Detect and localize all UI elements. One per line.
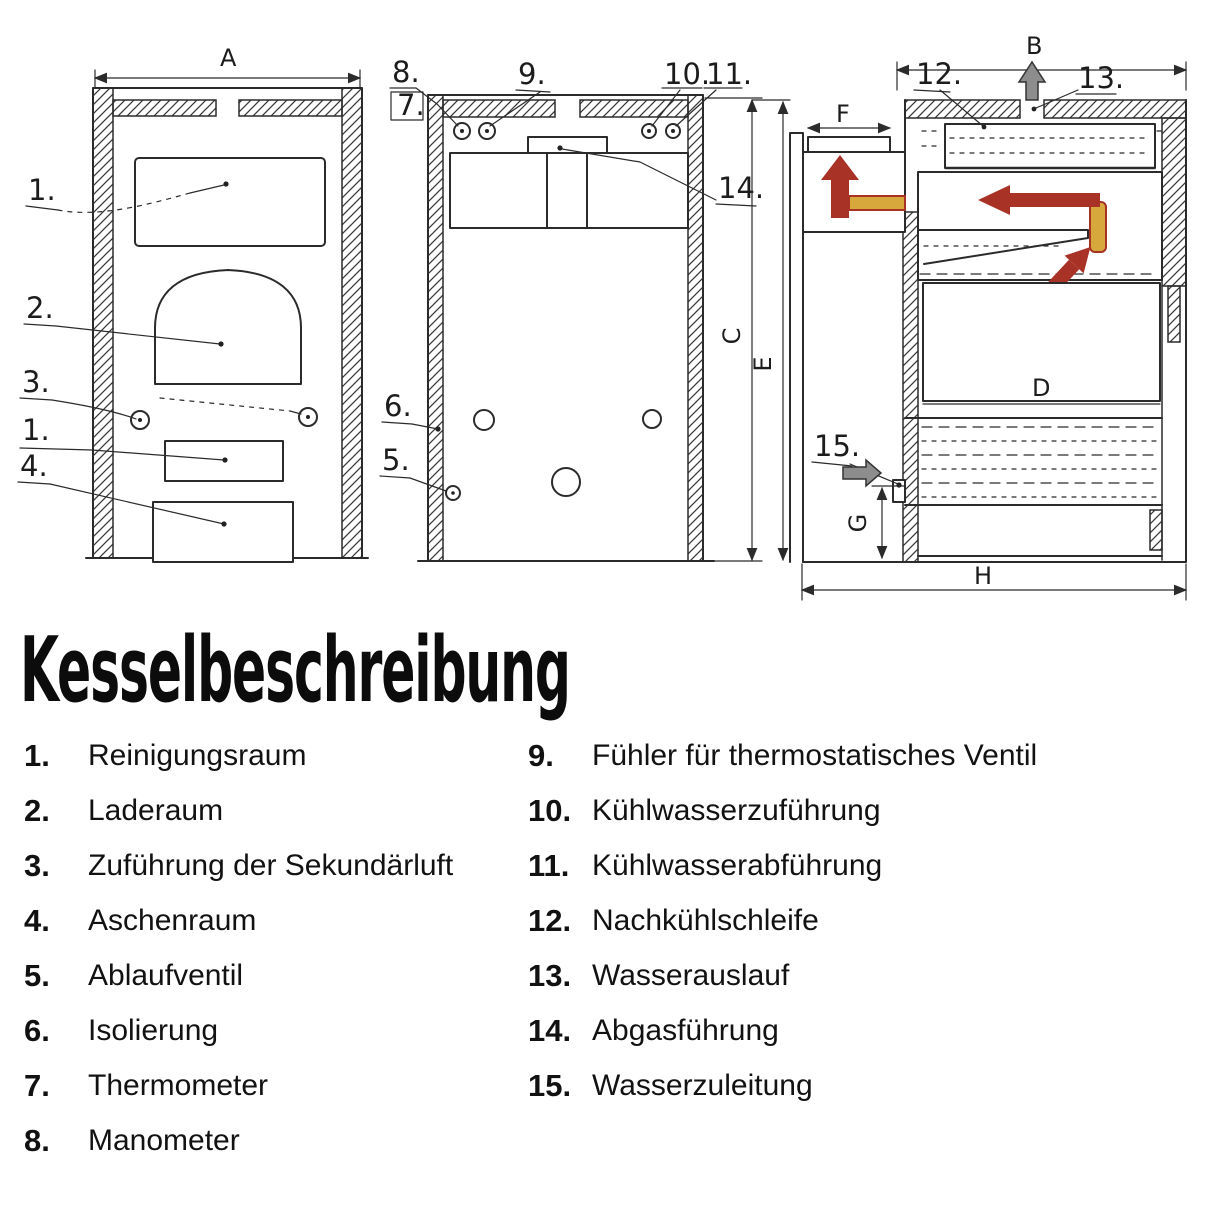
front-cleaning-chamber-door [135, 158, 325, 246]
rear-top-insulation-right [580, 100, 688, 117]
list-item: 13.Wasserauslauf [528, 948, 1037, 1003]
side-view-drawing: B F 12. [749, 32, 1186, 600]
item-number: 11. [528, 848, 592, 884]
callout-4-label: 4. [20, 449, 48, 483]
callout-11-label: 11. [706, 57, 752, 91]
item-label: Abgasführung [592, 1014, 779, 1048]
list-item: 11.Kühlwasserabführung [528, 838, 1037, 893]
callout-1b-label: 1. [22, 413, 50, 447]
callout-6-label: 6. [384, 389, 412, 423]
item-label: Ablaufventil [88, 959, 243, 993]
list-item: 5.Ablaufventil [24, 948, 453, 1003]
item-number: 1. [24, 738, 88, 774]
item-number: 4. [24, 903, 88, 939]
dimension-h: H [802, 562, 1186, 600]
item-label: Manometer [88, 1124, 240, 1158]
after-cooling-loop [922, 124, 1162, 168]
list-item: 14.Abgasführung [528, 1003, 1037, 1058]
dim-f-label: F [836, 100, 850, 128]
callout-3-label: 3. [22, 365, 50, 399]
cooling-water-inlet-port [642, 124, 656, 138]
hot-gas-left-arrow [978, 185, 1100, 215]
item-label: Thermometer [88, 1069, 268, 1103]
callout-15-label: 15. [814, 429, 860, 463]
callout-7-label: 7. [397, 88, 425, 122]
drain-valve-port [446, 486, 460, 500]
flue-outlet-box [803, 152, 905, 232]
list-item: 7.Thermometer [24, 1058, 453, 1113]
front-right-wall-insulation [342, 88, 362, 558]
callout-14-label: 14. [718, 171, 764, 205]
callout-8-label: 8. [392, 55, 420, 89]
dim-a-label: A [220, 44, 237, 72]
middle-baffle-wedge [918, 230, 1088, 264]
item-label: Aschenraum [88, 904, 256, 938]
list-item: 2.Laderaum [24, 783, 453, 838]
front-top-insulation-left [113, 100, 216, 116]
upper-flue-chamber [918, 172, 1162, 280]
flue-gas-outlet-stub [528, 137, 607, 153]
rear-view-drawing: 8. 7. 9. 10. 11. 14. 6. [380, 55, 764, 561]
item-label: Reinigungsraum [88, 739, 306, 773]
dim-g-label: G [844, 514, 872, 533]
side-right-wall-insulation [1162, 118, 1186, 286]
list-item: 15.Wasserzuleitung [528, 1058, 1037, 1113]
dimension-e: E [749, 100, 790, 560]
flue-elbow-pipe [1090, 202, 1106, 252]
rear-top-insulation-left [443, 100, 555, 117]
callout-9-label: 9. [518, 57, 546, 91]
item-number: 5. [24, 958, 88, 994]
dim-c-label: C [718, 328, 746, 345]
item-label: Kühlwasserzuführung [592, 794, 881, 828]
item-label: Kühlwasserabführung [592, 849, 882, 883]
callout-13-label: 13. [1078, 61, 1124, 95]
front-view-drawing: A 1. 2. 3. [18, 44, 368, 562]
rear-upper-chamber [450, 153, 688, 228]
item-label: Fühler für thermostatisches Ventil [592, 739, 1037, 773]
list-item: 9.Fühler für thermostatisches Ventil [528, 728, 1037, 783]
list-item: 12.Nachkühlschleife [528, 893, 1037, 948]
item-number: 10. [528, 793, 592, 829]
callout-2-label: 2. [26, 291, 54, 325]
item-number: 6. [24, 1013, 88, 1049]
item-number: 9. [528, 738, 592, 774]
item-label: Isolierung [88, 1014, 218, 1048]
callout-1-label: 1. [28, 173, 56, 207]
callout-7-thermometer: 7. [391, 88, 425, 122]
item-label: Zuführung der Sekundärluft [88, 849, 453, 883]
cooling-water-outlet-port [666, 124, 680, 138]
item-label: Wasserzuleitung [592, 1069, 813, 1103]
item-number: 8. [24, 1123, 88, 1159]
side-right-wall-strip [1168, 286, 1180, 342]
item-number: 15. [528, 1068, 592, 1104]
item-number: 7. [24, 1068, 88, 1104]
front-loading-chamber-arch [155, 270, 301, 384]
manometer-port [454, 123, 470, 139]
dim-d-label: D [1032, 374, 1050, 402]
dim-b-label: B [1026, 32, 1042, 60]
front-top-insulation-right [239, 100, 342, 116]
page-title: Kesselbeschreibung [20, 618, 570, 723]
dim-h-label: H [974, 562, 992, 590]
dimension-a: A [95, 44, 360, 92]
sensor-port [479, 123, 495, 139]
item-label: Wasserauslauf [592, 959, 789, 993]
callout-10-label: 10. [664, 57, 710, 91]
list-item: 10.Kühlwasserzuführung [528, 783, 1037, 838]
side-top-insulation-right [1044, 100, 1186, 118]
item-label: Nachkühlschleife [592, 904, 819, 938]
item-label: Laderaum [88, 794, 223, 828]
manual-page: A 1. 2. 3. [0, 0, 1214, 1214]
dimension-c: C [705, 98, 762, 561]
flue-flow-left-arrow [978, 185, 1106, 252]
item-number: 3. [24, 848, 88, 884]
parts-list-left-column: 1.Reinigungsraum 2.Laderaum 3.Zuführung … [24, 728, 453, 1168]
flue-exit-arrow-icon [1019, 62, 1045, 100]
callout-12-label: 12. [916, 57, 962, 91]
heat-exchanger-bank [905, 418, 1162, 505]
rear-right-wall-insulation [688, 95, 703, 561]
item-number: 14. [528, 1013, 592, 1049]
side-front-panel [790, 133, 803, 562]
item-number: 13. [528, 958, 592, 994]
flue-pipe-segment [849, 196, 905, 210]
front-left-wall-insulation [93, 88, 113, 558]
flue-outlet-collar [808, 137, 890, 152]
callout-5-label: 5. [382, 443, 410, 477]
list-item: 6.Isolierung [24, 1003, 453, 1058]
dim-e-label: E [749, 356, 777, 371]
dimension-f: F [808, 100, 890, 128]
item-number: 2. [24, 793, 88, 829]
item-number: 12. [528, 903, 592, 939]
list-item: 8.Manometer [24, 1113, 453, 1168]
cold-water-inlet-arrow-icon [843, 460, 881, 486]
front-ash-chamber-door [153, 502, 293, 562]
list-item: 1.Reinigungsraum [24, 728, 453, 783]
boiler-technical-drawing: A 1. 2. 3. [0, 0, 1214, 618]
list-item: 3.Zuführung der Sekundärluft [24, 838, 453, 893]
rear-left-wall-insulation [428, 95, 443, 561]
list-item: 4.Aschenraum [24, 893, 453, 948]
parts-list-right-column: 9.Fühler für thermostatisches Ventil 10.… [528, 728, 1037, 1113]
side-bottom-right-detail [1150, 510, 1162, 550]
side-left-wall-insulation [903, 212, 918, 562]
